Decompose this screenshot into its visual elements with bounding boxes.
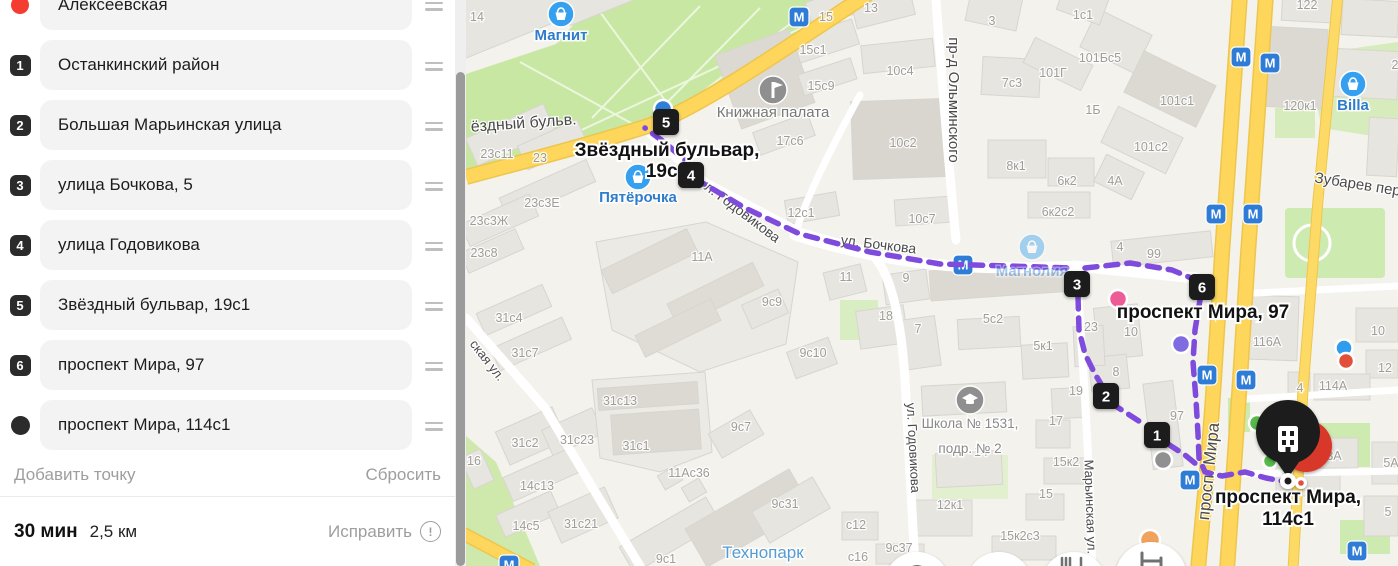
building-number-label: 10с4 xyxy=(886,64,913,78)
metro-letter: М xyxy=(1236,50,1247,65)
building-number-label: 9 xyxy=(903,271,910,285)
building-number-label: 10с2 xyxy=(889,136,916,150)
building-number-label: 15 xyxy=(1039,487,1053,501)
building-number-label: 4А xyxy=(1107,174,1123,188)
sidebar-scrollbar xyxy=(455,0,466,566)
building-number-label: 122 xyxy=(1297,0,1318,12)
marker-number: 3 xyxy=(1073,277,1081,294)
waypoint-badge-box xyxy=(0,416,40,435)
store-label: Магнолия xyxy=(996,263,1069,280)
store-label: Billa xyxy=(1337,97,1369,114)
building-number-label: 7с3 xyxy=(1002,76,1022,90)
metro-letter: М xyxy=(1211,207,1222,222)
metro-icon[interactable]: М xyxy=(789,7,809,27)
drag-handle-icon xyxy=(425,298,443,315)
waypoint-row: 6проспект Мира, 97 xyxy=(0,340,455,390)
building-number-label: 31с1 xyxy=(622,439,649,453)
drag-handle-icon xyxy=(425,58,443,75)
drag-handle-icon xyxy=(425,358,443,375)
place-label: Технопарк xyxy=(722,543,804,562)
building-number-label: 23 xyxy=(533,151,547,165)
building-number-label: с16 xyxy=(848,550,868,564)
building-number-label: 18 xyxy=(879,309,893,323)
building-number-label: 17с6 xyxy=(776,134,803,148)
basket-body xyxy=(633,176,644,184)
building-number-label: 5А xyxy=(1383,456,1398,470)
drag-handle[interactable] xyxy=(412,236,455,255)
building-number-label: 101Г xyxy=(1039,66,1067,80)
route-point-label: Звёздный бульвар, xyxy=(575,140,760,161)
metro-letter: М xyxy=(1265,56,1276,71)
building-number-label: 5с2 xyxy=(983,312,1003,326)
sidebar: Алексеевская1Останкинский район2Большая … xyxy=(0,0,455,566)
waypoint-badge-1: 1 xyxy=(10,55,31,76)
place-label: Школа № 1531, xyxy=(922,416,1019,431)
building-number-label: 23с3Е xyxy=(524,196,559,210)
waypoint-input[interactable]: Останкинский район xyxy=(40,40,412,90)
route-duration: 30 мин xyxy=(14,521,78,543)
building-window xyxy=(1290,440,1294,445)
pin-anchor-dot xyxy=(1285,478,1292,485)
building-window xyxy=(1282,431,1286,436)
building-number-label: 31с21 xyxy=(564,517,598,531)
building-number-label: 14 xyxy=(470,10,484,24)
building-number-label: 101с1 xyxy=(1160,94,1194,108)
waypoint-row: 2Большая Марьинская улица xyxy=(0,100,455,150)
metro-icon[interactable]: М xyxy=(1347,541,1367,561)
metro-icon[interactable]: М xyxy=(1197,365,1217,385)
poi-dot[interactable] xyxy=(1338,353,1354,369)
building-door xyxy=(1286,447,1291,452)
store-label: Пятёрочка xyxy=(599,189,677,206)
building-number-label: 8к1 xyxy=(1006,159,1025,173)
place-label: подр. № 2 xyxy=(938,441,1001,456)
waypoint-badge-3: 3 xyxy=(10,175,31,196)
building-number-label: 10 xyxy=(1124,325,1138,339)
map-route-marker-5[interactable]: 5 xyxy=(653,109,679,135)
metro-icon[interactable]: М xyxy=(499,555,519,566)
route-distance: 2,5 км xyxy=(90,522,137,542)
waypoint-row: 1Останкинский район xyxy=(0,40,455,90)
route-summary: 30 мин 2,5 км Исправить ! xyxy=(0,496,455,566)
waypoint-badge-2: 2 xyxy=(10,115,31,136)
building-number-label: 7 xyxy=(915,322,922,336)
building-number-label: 101Бс5 xyxy=(1079,51,1121,65)
building-number-label: 1с1 xyxy=(1073,8,1093,22)
building-number-label: с12 xyxy=(846,518,866,532)
waypoint-input[interactable]: проспект Мира, 97 xyxy=(40,340,412,390)
mini-dot xyxy=(1298,480,1304,486)
waypoint-input[interactable]: проспект Мира, 114с1 xyxy=(40,400,412,450)
building-number-label: 15с9 xyxy=(807,79,834,93)
waypoint-badge-box: 2 xyxy=(0,115,40,136)
fix-route-button[interactable]: Исправить xyxy=(328,522,412,542)
basket-body xyxy=(556,13,567,21)
cap-base xyxy=(966,400,974,404)
building-number-label: 6к2 xyxy=(1057,174,1076,188)
map-route-marker-3[interactable]: 3 xyxy=(1064,271,1090,297)
drag-handle[interactable] xyxy=(412,416,455,435)
route-point-label: проспект Мира, 97 xyxy=(1117,302,1290,323)
building-number-label: 10с7 xyxy=(908,212,935,226)
building-number-label: 2 xyxy=(1392,58,1398,72)
waypoint-badge-box: 3 xyxy=(0,175,40,196)
building-window xyxy=(1282,440,1286,445)
basket-body xyxy=(1027,246,1038,254)
building-number-label: 31с23 xyxy=(560,433,594,447)
waypoint-badge-box: 4 xyxy=(0,235,40,256)
drag-handle[interactable] xyxy=(412,176,455,195)
building-number-label: 31с7 xyxy=(511,346,538,360)
waypoint-badge-box: 6 xyxy=(0,355,40,376)
waypoint-row: проспект Мира, 114с1 xyxy=(0,400,455,450)
building-number-label: 5к1 xyxy=(1033,339,1052,353)
building-number-label: 97 xyxy=(1170,409,1184,423)
building-number-label: 6к2с2 xyxy=(1042,205,1075,219)
metro-letter: М xyxy=(794,10,805,25)
waypoint-badge-end xyxy=(11,416,30,435)
poi-dot[interactable] xyxy=(1154,451,1172,469)
metro-icon[interactable]: М xyxy=(1206,204,1226,224)
route-point-label: проспект Мира, xyxy=(1215,487,1361,508)
basket-body xyxy=(1348,83,1359,91)
building-number-label: 31с4 xyxy=(495,311,522,325)
building-number-label: 9с7 xyxy=(731,420,751,434)
drag-handle-icon xyxy=(425,178,443,195)
metro-icon[interactable]: М xyxy=(1260,53,1280,73)
place-poi[interactable]: Технопарк xyxy=(722,543,804,562)
reset-button[interactable]: Сбросить xyxy=(365,465,441,485)
waypoint-row: Алексеевская xyxy=(0,0,455,30)
marker-number: 1 xyxy=(1153,428,1161,445)
building-number-label: 4 xyxy=(1117,240,1124,254)
poi-dot[interactable] xyxy=(1172,335,1190,353)
building-number-label: 1Б xyxy=(1085,103,1100,117)
building-number-label: 101с2 xyxy=(1134,140,1168,154)
store-label: Магнит xyxy=(535,27,588,44)
marker-number: 2 xyxy=(1102,389,1110,406)
metro-icon[interactable]: М xyxy=(1231,47,1251,67)
route-point-label: 114с1 xyxy=(1262,509,1314,530)
building-number-label: 23с11 xyxy=(480,147,513,161)
building-number-label: 31с13 xyxy=(603,394,637,408)
building-number-label: 23с3Ж xyxy=(470,214,509,228)
building-number-label: 114А xyxy=(1319,379,1348,393)
sidebar-actions: Добавить точку Сбросить xyxy=(0,460,455,490)
building-number-label: 9с31 xyxy=(771,497,798,511)
metro-icon[interactable]: М xyxy=(1180,470,1200,490)
waypoint-badge-5: 5 xyxy=(10,295,31,316)
sidebar-scrollbar-thumb[interactable] xyxy=(456,72,465,566)
drag-handle-icon xyxy=(425,418,443,435)
building-number-label: 116А xyxy=(1253,335,1282,349)
metro-letter: М xyxy=(1248,207,1259,222)
waypoint-badge-start xyxy=(11,0,29,14)
building-number-label: 23с8 xyxy=(470,246,497,260)
waypoint-row: 4улица Годовикова xyxy=(0,220,455,270)
building-number-label: 11 xyxy=(840,270,853,284)
building-number-label: 15с1 xyxy=(799,43,826,57)
place-label: Книжная палата xyxy=(717,104,830,121)
drag-handle-icon xyxy=(425,238,443,255)
building-number-label: 15к2с3 xyxy=(1000,529,1040,543)
building-number-label: 17 xyxy=(1049,414,1063,428)
building-number-label: 19 xyxy=(1069,384,1083,398)
building-number-label: 15 xyxy=(819,10,833,24)
building-number-label: 4 xyxy=(1297,381,1304,395)
map[interactable]: ёздный бульв.ул. Годовиковаул. Бочковапр… xyxy=(466,0,1398,566)
map-route-marker-4[interactable]: 4 xyxy=(678,162,704,188)
waypoint-row: 3улица Бочкова, 5 xyxy=(0,160,455,210)
building-number-label: 11А xyxy=(691,250,713,264)
marker-number: 5 xyxy=(662,115,670,132)
waypoint-input[interactable]: Алексеевская xyxy=(40,0,412,30)
building-number-label: 23 xyxy=(1084,320,1098,334)
building-number-label: 9с37 xyxy=(885,541,912,555)
building-number-label: 8 xyxy=(1113,365,1120,379)
building-number-label: 10 xyxy=(1371,324,1385,338)
drag-handle-icon xyxy=(425,118,443,135)
add-point-button[interactable]: Добавить точку xyxy=(14,465,136,485)
drag-handle[interactable] xyxy=(412,0,455,15)
drag-handle[interactable] xyxy=(412,116,455,135)
building-number-label: 9с1 xyxy=(656,552,676,566)
route-planner-app: Алексеевская1Останкинский район2Большая … xyxy=(0,0,1398,566)
building-number-label: 9с10 xyxy=(799,346,826,360)
building-number-label: 13 xyxy=(864,1,878,15)
marker-number: 4 xyxy=(687,168,696,185)
building-number-label: 31с2 xyxy=(511,436,538,450)
waypoint-badge-6: 6 xyxy=(10,355,31,376)
waypoint-input[interactable]: улица Годовикова xyxy=(40,220,412,270)
waypoint-row: 5Звёздный бульвар, 19с1 xyxy=(0,280,455,330)
flag-pole xyxy=(772,82,775,98)
waypoint-input[interactable]: улица Бочкова, 5 xyxy=(40,160,412,210)
building-number-label: 99 xyxy=(1147,247,1161,261)
map-route-marker-2[interactable]: 2 xyxy=(1093,383,1119,409)
metro-icon[interactable]: М xyxy=(1236,370,1256,390)
building-number-label: 120к1 xyxy=(1283,99,1316,113)
waypoint-badge-box: 5 xyxy=(0,295,40,316)
metro-letter: М xyxy=(1352,544,1363,559)
building-number-label: 3 xyxy=(989,14,996,28)
waypoint-badge-box: 1 xyxy=(0,55,40,76)
drag-handle[interactable] xyxy=(412,356,455,375)
building-number-label: 16 xyxy=(467,454,481,468)
building-number-label: 14с13 xyxy=(520,479,554,493)
building-number-label: 14с5 xyxy=(512,519,539,533)
metro-letter: М xyxy=(1241,373,1252,388)
drag-handle[interactable] xyxy=(412,296,455,315)
building-number-label: 15к2 xyxy=(1053,455,1079,469)
building-number-label: 11Ас36 xyxy=(668,466,710,480)
building-number-label: 12с1 xyxy=(787,206,814,220)
building-number-label: 12 xyxy=(1378,361,1392,375)
building-number-label: 9с9 xyxy=(762,295,782,309)
metro-letter: М xyxy=(1202,368,1213,383)
metro-letter: М xyxy=(504,558,515,566)
metro-letter: М xyxy=(1185,473,1196,488)
map-route-marker-6[interactable]: 6 xyxy=(1189,274,1215,300)
street-label: пр-д Ольминского xyxy=(945,37,962,162)
drag-handle-icon xyxy=(425,0,443,15)
marker-number: 6 xyxy=(1198,280,1206,297)
building-window xyxy=(1290,431,1294,436)
info-icon[interactable]: ! xyxy=(420,521,441,542)
waypoint-input[interactable]: Звёздный бульвар, 19с1 xyxy=(40,280,412,330)
waypoint-badge-box xyxy=(0,0,40,14)
waypoint-list: Алексеевская1Останкинский район2Большая … xyxy=(0,0,455,450)
waypoint-input[interactable]: Большая Марьинская улица xyxy=(40,100,412,150)
metro-icon[interactable]: М xyxy=(1243,204,1263,224)
map-route-marker-1[interactable]: 1 xyxy=(1144,422,1170,448)
building-number-label: 5 xyxy=(1385,505,1392,519)
drag-handle[interactable] xyxy=(412,56,455,75)
waypoint-badge-4: 4 xyxy=(10,235,31,256)
building-number-label: 12к1 xyxy=(937,498,963,512)
